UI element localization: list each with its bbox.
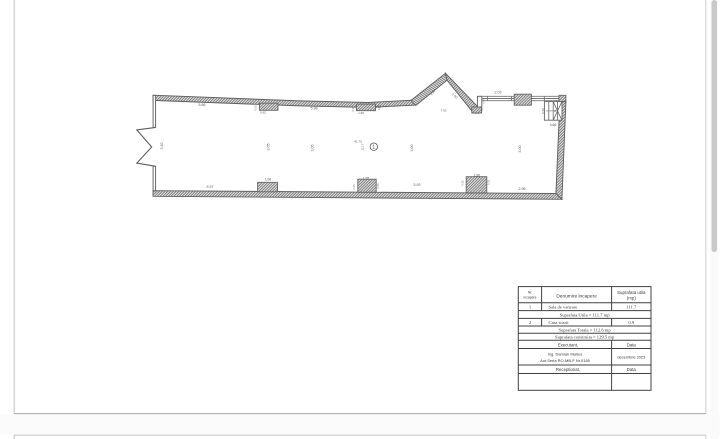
svg-text:Sala de vanzare: Sala de vanzare [549, 305, 578, 310]
svg-text:5.93: 5.93 [414, 183, 421, 187]
svg-text:0.35: 0.35 [377, 104, 381, 110]
svg-text:(mp): (mp) [627, 296, 637, 301]
svg-text:0.90: 0.90 [482, 98, 486, 104]
svg-text:3.05: 3.05 [311, 145, 315, 152]
svg-text:Aut.Seria RO-MB-F Nr.0165: Aut.Seria RO-MB-F Nr.0165 [540, 358, 591, 363]
svg-text:1.08: 1.08 [265, 178, 271, 182]
svg-text:2.03: 2.03 [495, 90, 502, 94]
svg-text:0.35: 0.35 [376, 183, 380, 189]
svg-text:incapere: incapere [523, 296, 536, 300]
svg-text:Suprafata Totala = 112.6 mp: Suprafata Totala = 112.6 mp [559, 328, 612, 333]
svg-text:1.86: 1.86 [474, 174, 480, 178]
svg-text:decembrie 2023: decembrie 2023 [617, 354, 645, 359]
svg-text:Casa scarii: Casa scarii [549, 320, 570, 325]
svg-text:0.35: 0.35 [487, 179, 491, 185]
svg-text:Ing. Damian Marius: Ing. Damian Marius [548, 352, 583, 357]
svg-text:1.90: 1.90 [358, 111, 364, 115]
svg-text:41.75: 41.75 [354, 140, 362, 144]
svg-text:Suprafata utila: Suprafata utila [617, 290, 646, 295]
svg-text:Executant,: Executant, [558, 342, 578, 347]
svg-text:3.00: 3.00 [410, 145, 414, 152]
svg-text:Denumire incapere: Denumire incapere [556, 293, 597, 299]
svg-text:3.00: 3.00 [518, 146, 522, 153]
svg-text:4.66: 4.66 [550, 123, 557, 127]
svg-text:0.35: 0.35 [461, 180, 465, 186]
svg-text:5.98: 5.98 [311, 106, 318, 110]
svg-text:Receptionat,: Receptionat, [556, 367, 580, 372]
svg-text:5.86: 5.86 [199, 103, 206, 107]
svg-text:0.35: 0.35 [352, 184, 356, 190]
svg-text:0.62: 0.62 [260, 111, 266, 115]
svg-text:0.35: 0.35 [351, 106, 355, 112]
svg-text:1: 1 [372, 145, 375, 151]
svg-text:Data: Data [627, 367, 637, 372]
svg-text:Suprafata construita = 129.5 m: Suprafata construita = 129.5 mp [555, 335, 615, 340]
svg-text:3.05: 3.05 [267, 144, 271, 151]
svg-text:3.10: 3.10 [160, 143, 164, 150]
svg-text:0.90: 0.90 [542, 108, 546, 114]
svg-text:0.9: 0.9 [628, 320, 634, 325]
svg-text:7.93: 7.93 [441, 108, 447, 112]
svg-text:Suprafata Utila = 111.7 mp: Suprafata Utila = 111.7 mp [560, 312, 611, 317]
svg-text:Nr.: Nr. [528, 291, 532, 295]
svg-text:111.7: 111.7 [626, 305, 637, 310]
svg-text:1.05: 1.05 [363, 176, 369, 180]
svg-text:5.97: 5.97 [207, 185, 214, 189]
svg-text:111.7: 111.7 [361, 143, 365, 150]
svg-text:0.35: 0.35 [254, 105, 258, 111]
svg-text:Data: Data [627, 342, 637, 347]
svg-text:2.96: 2.96 [519, 187, 526, 191]
